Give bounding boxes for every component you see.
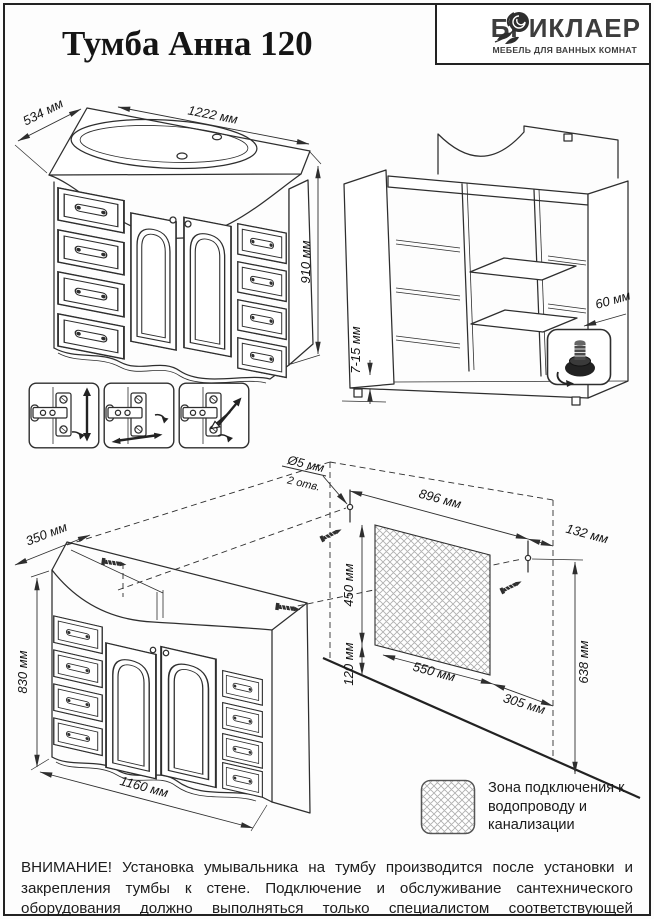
drawer-front bbox=[54, 616, 102, 654]
dim-right-offset: 132 мм bbox=[564, 521, 610, 547]
cabinet-top-dip bbox=[52, 570, 272, 630]
dim-foot-gap: 7-15 мм bbox=[348, 326, 363, 374]
legend: Зона подключения к водопроводу и канализ… bbox=[420, 779, 648, 835]
mount-screw-icon bbox=[319, 527, 343, 543]
adjustable-foot-icon bbox=[546, 328, 612, 386]
dim-height: 910 мм bbox=[298, 240, 313, 283]
cabinet-right-back bbox=[272, 603, 310, 813]
hinge-vertical-adjust-icon bbox=[28, 382, 100, 449]
legend-label: Зона подключения к водопроводу и канализ… bbox=[488, 779, 648, 835]
drawer-front bbox=[54, 684, 102, 722]
dim-cab-height: 830 мм bbox=[15, 650, 30, 693]
floor-line bbox=[323, 658, 640, 798]
top-rail bbox=[388, 176, 588, 205]
drawer-front bbox=[223, 671, 263, 706]
mount-screw-icon bbox=[499, 579, 523, 595]
dim-wall-height: 638 мм bbox=[576, 640, 591, 683]
drawer-front bbox=[58, 314, 124, 359]
drawer-front bbox=[238, 262, 286, 302]
mount-hole bbox=[525, 555, 530, 560]
drawer-front bbox=[58, 188, 124, 233]
warning-text: ВНИМАНИЕ! Установка умывальника на тумбу… bbox=[21, 858, 633, 919]
spec-sheet-page: БРИКЛАЕР МЕБЕЛЬ ДЛЯ ВАННЫХ КОМНАТ Тумба … bbox=[0, 0, 654, 919]
drawer-front bbox=[223, 703, 263, 738]
dim-hole-count: 2 отв. bbox=[285, 474, 321, 493]
drawer-front bbox=[54, 650, 102, 688]
hinge-adjustment-guide bbox=[28, 382, 250, 449]
dim-hole-diameter: Ø5 мм bbox=[285, 453, 326, 475]
door-right bbox=[161, 647, 216, 788]
door-left bbox=[106, 643, 156, 779]
door-knob bbox=[170, 217, 176, 223]
dim-cab-width: 1160 мм bbox=[118, 773, 170, 800]
page-title: Тумба Анна 120 bbox=[62, 24, 313, 64]
drawer-front bbox=[58, 272, 124, 317]
mount-screw-icon bbox=[275, 603, 301, 613]
drawer-front bbox=[238, 300, 286, 340]
door-knob bbox=[185, 221, 191, 227]
dim-depth: 534 мм bbox=[20, 95, 65, 128]
mount-hole bbox=[347, 504, 352, 509]
drawer-front bbox=[54, 718, 102, 756]
drawer-front bbox=[223, 734, 263, 769]
dim-zone-bottom: 120 мм bbox=[341, 642, 356, 685]
hinge-horizontal-adjust-icon bbox=[103, 382, 175, 449]
door-knob bbox=[150, 647, 155, 652]
drawer-front bbox=[58, 230, 124, 275]
front-view-drawing: 534 мм 1222 мм 910 мм bbox=[12, 94, 334, 382]
door-knob bbox=[163, 650, 168, 655]
drawer-front bbox=[238, 224, 286, 264]
cabinet-back-top bbox=[52, 542, 307, 603]
door-right bbox=[184, 217, 231, 357]
hinge-depth-adjust-icon bbox=[178, 382, 250, 449]
foot bbox=[354, 389, 362, 397]
mount-leader bbox=[118, 508, 346, 590]
brand-logo-box: БРИКЛАЕР МЕБЕЛЬ ДЛЯ ВАННЫХ КОМНАТ bbox=[435, 3, 651, 65]
brand-row: БРИКЛАЕР bbox=[491, 13, 641, 44]
door-left bbox=[131, 213, 176, 350]
dim-zone-height: 450 мм bbox=[341, 563, 356, 606]
foot bbox=[572, 397, 580, 405]
dim-cab-depth: 350 мм bbox=[24, 519, 70, 548]
rose-icon bbox=[491, 9, 535, 49]
hanger-clip bbox=[564, 134, 572, 141]
countertop bbox=[49, 108, 310, 175]
bottom-front-edge bbox=[350, 388, 588, 398]
dim-zone-right: 305 мм bbox=[501, 690, 547, 717]
back-splash-panel bbox=[438, 126, 618, 178]
dim-hole-span: 896 мм bbox=[417, 486, 463, 512]
plumbing-zone-swatch bbox=[420, 779, 476, 835]
plumbing-zone bbox=[375, 525, 490, 675]
drawer-front bbox=[238, 338, 286, 378]
